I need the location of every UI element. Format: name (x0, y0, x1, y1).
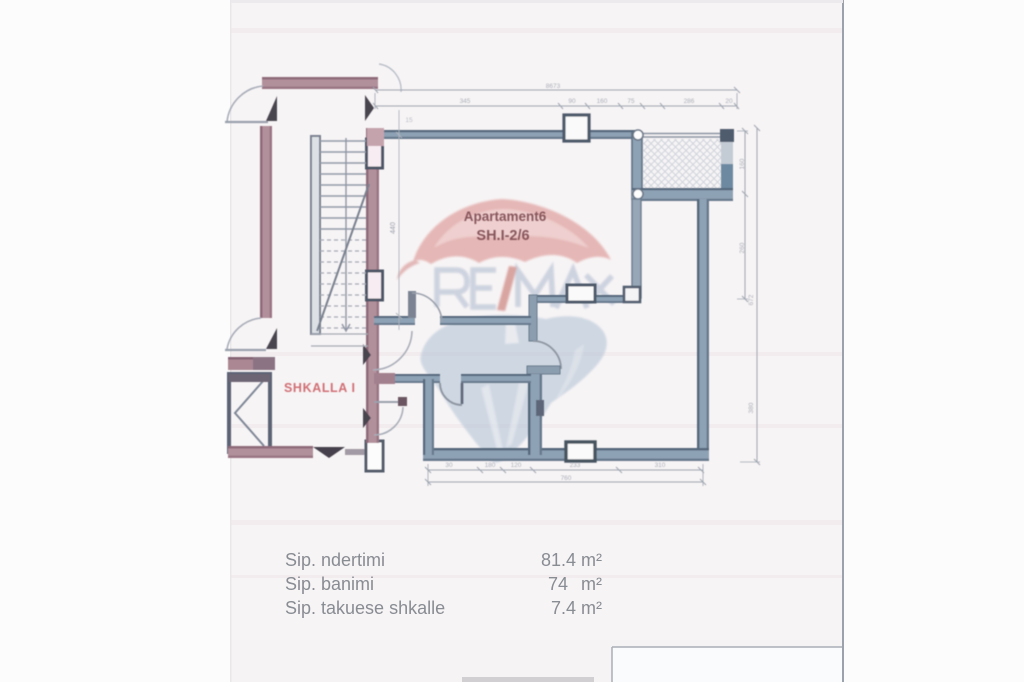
svg-text:260: 260 (739, 242, 746, 253)
svg-text:180: 180 (485, 462, 496, 469)
svg-text:672: 672 (748, 294, 755, 305)
svg-text:15: 15 (405, 117, 413, 124)
svg-text:Sip. takuese shkalle: Sip. takuese shkalle (285, 598, 445, 618)
svg-text:310: 310 (655, 462, 666, 469)
svg-text:74: 74 (548, 574, 568, 594)
svg-text:SH.I-2/6: SH.I-2/6 (476, 228, 529, 244)
svg-text:233: 233 (570, 462, 581, 469)
svg-text:286: 286 (684, 98, 695, 105)
svg-text:Apartament6: Apartament6 (464, 209, 547, 224)
svg-text:380: 380 (748, 402, 755, 413)
svg-text:120: 120 (511, 462, 522, 469)
svg-text:345: 345 (460, 98, 471, 105)
svg-text:760: 760 (561, 475, 572, 482)
svg-text:Sip. ndertimi: Sip. ndertimi (285, 550, 385, 570)
svg-text:20: 20 (725, 98, 733, 105)
svg-text:Sip. banimi: Sip. banimi (285, 574, 374, 594)
svg-text:75: 75 (627, 98, 635, 105)
svg-text:8673: 8673 (546, 83, 561, 90)
svg-text:160: 160 (739, 158, 746, 169)
svg-text:81.4 m²: 81.4 m² (541, 550, 602, 570)
svg-text:160: 160 (597, 98, 608, 105)
svg-text:440: 440 (390, 222, 397, 234)
svg-text:m²: m² (581, 574, 602, 594)
svg-text:SHKALLA I: SHKALLA I (284, 381, 356, 395)
svg-text:7.4 m²: 7.4 m² (551, 598, 602, 618)
svg-text:30: 30 (445, 462, 453, 469)
svg-text:90: 90 (568, 98, 576, 105)
